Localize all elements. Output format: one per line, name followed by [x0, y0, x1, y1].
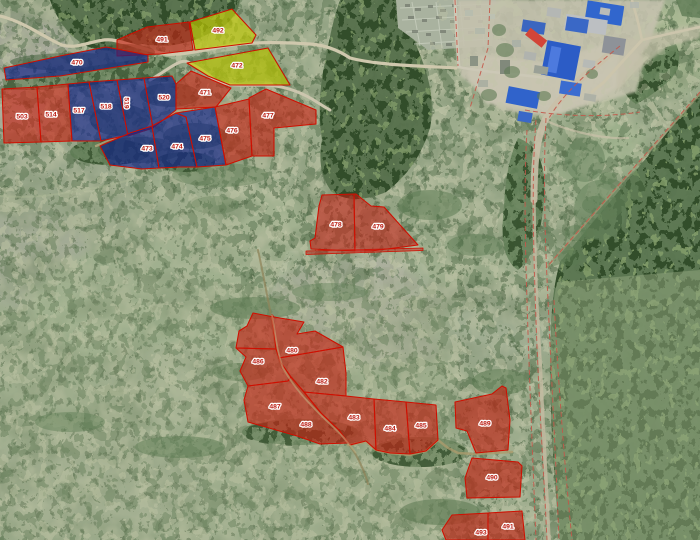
svg-text:479: 479: [372, 223, 384, 230]
svg-text:Avito: Avito: [269, 236, 432, 310]
svg-text:503: 503: [16, 113, 28, 120]
svg-text:487: 487: [269, 403, 281, 410]
svg-text:483: 483: [348, 414, 360, 421]
svg-text:476: 476: [226, 127, 238, 134]
svg-text:470: 470: [71, 59, 83, 66]
svg-text:490: 490: [486, 474, 498, 481]
svg-text:492: 492: [212, 27, 224, 34]
svg-text:486: 486: [252, 358, 264, 365]
svg-text:471: 471: [199, 89, 211, 96]
svg-text:493: 493: [475, 529, 487, 536]
svg-text:488: 488: [300, 421, 312, 428]
svg-text:473: 473: [141, 145, 153, 152]
svg-text:518: 518: [100, 103, 112, 110]
svg-text:475: 475: [199, 135, 211, 142]
svg-text:484: 484: [384, 425, 396, 432]
svg-text:477: 477: [262, 112, 274, 119]
svg-text:491: 491: [156, 36, 168, 43]
svg-text:491: 491: [502, 523, 514, 530]
svg-text:485: 485: [415, 422, 427, 429]
svg-text:482: 482: [316, 378, 328, 385]
svg-text:520: 520: [158, 94, 170, 101]
svg-text:517: 517: [73, 107, 85, 114]
svg-text:478: 478: [330, 221, 342, 228]
svg-text:480: 480: [286, 347, 298, 354]
svg-text:519: 519: [123, 97, 130, 109]
svg-text:472: 472: [231, 62, 243, 69]
svg-text:489: 489: [479, 420, 491, 427]
svg-text:514: 514: [45, 111, 57, 118]
svg-text:474: 474: [171, 143, 183, 150]
